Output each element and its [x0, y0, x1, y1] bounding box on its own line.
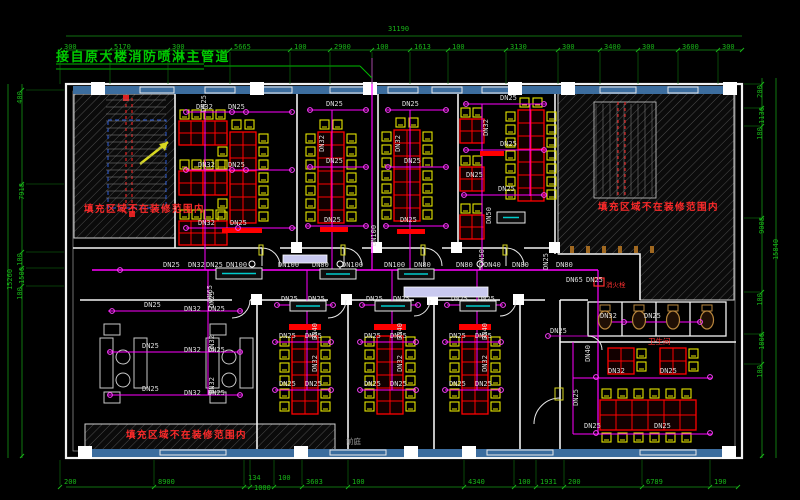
- title-leader: [56, 64, 372, 78]
- floorplan-svg: [0, 0, 800, 500]
- sprinkler-head: [708, 375, 713, 380]
- fire-hydrant: [594, 278, 604, 286]
- round-table: [116, 373, 130, 387]
- sprinkler-head: [708, 431, 713, 436]
- reception-desks: [283, 255, 488, 297]
- cad-floorplan-canvas: 接自原大楼消防喷淋主管道 填充区域不在装修范围内 填充区域不在装修范围内 填充区…: [0, 0, 800, 500]
- round-table: [222, 373, 236, 387]
- lounge-sofas: [100, 324, 253, 403]
